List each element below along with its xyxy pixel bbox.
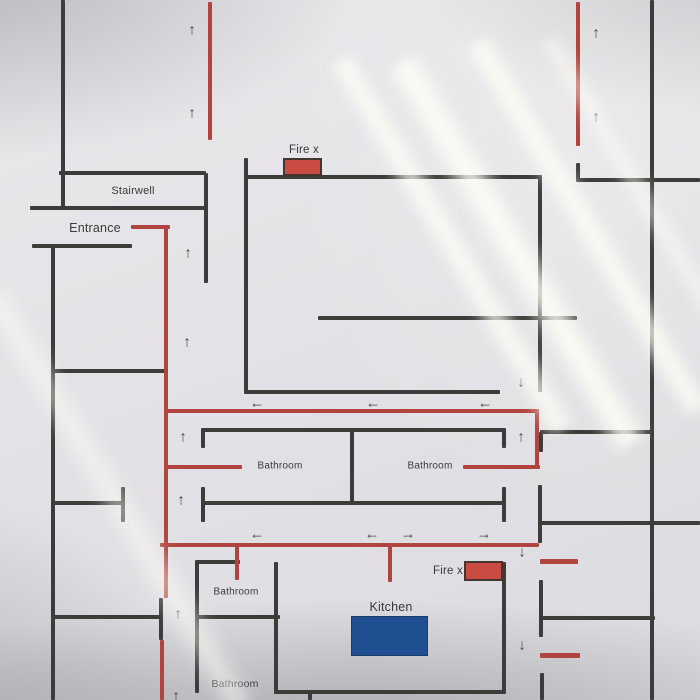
route-arrow-right: → — [477, 527, 492, 542]
kitchen-label: Kitchen — [369, 600, 412, 614]
wall-vertical — [538, 177, 542, 392]
evacuation-route-line — [208, 2, 212, 140]
evacuation-route-line — [160, 543, 539, 547]
wall-vertical — [539, 580, 543, 637]
wall-vertical — [159, 598, 163, 640]
wall-horizontal — [274, 690, 506, 694]
wall-vertical — [195, 562, 199, 693]
evacuation-route-line — [540, 653, 580, 658]
wall-horizontal — [540, 616, 655, 620]
fire-extinguisher-marker-bottom — [464, 561, 503, 581]
route-arrow-up: ↑ — [188, 106, 196, 121]
route-arrow-left: ← — [250, 396, 265, 411]
wall-horizontal — [59, 171, 206, 175]
wall-horizontal — [32, 244, 132, 248]
wall-vertical — [244, 158, 248, 392]
wall-vertical — [502, 562, 506, 692]
wall-horizontal — [201, 501, 506, 505]
route-arrow-up: ↑ — [592, 26, 600, 41]
bathroom-lower-label: Bathroom — [214, 587, 259, 598]
route-arrow-right: → — [401, 527, 416, 542]
route-arrow-down: ↓ — [518, 638, 526, 653]
fire-ext-bottom-label: Fire x — [433, 565, 463, 577]
wall-vertical — [61, 0, 65, 208]
wall-vertical — [204, 173, 208, 283]
evacuation-route-line — [540, 559, 578, 564]
wall-horizontal — [53, 615, 161, 619]
route-arrow-left: ← — [478, 396, 493, 411]
route-arrow-up: ↑ — [592, 110, 600, 125]
route-arrow-down: ↓ — [518, 545, 526, 560]
route-arrow-up: ↑ — [179, 430, 187, 445]
paper-sheet: ↑↑↑↑↑↑↑↑↑↑↑↓↓↓←←←←←→→StairwellEntranceFi… — [0, 0, 700, 700]
route-arrow-up: ↑ — [174, 607, 182, 622]
wall-horizontal — [51, 369, 168, 373]
wall-horizontal — [195, 615, 280, 619]
wall-vertical — [201, 430, 205, 448]
wall-vertical — [51, 246, 55, 700]
evacuation-route-line — [164, 465, 242, 469]
route-arrow-up: ↑ — [183, 335, 191, 350]
kitchen-island-marker — [351, 616, 428, 656]
floor-plan-photo: ↑↑↑↑↑↑↑↑↑↑↑↓↓↓←←←←←→→StairwellEntranceFi… — [0, 0, 700, 700]
wall-horizontal — [576, 178, 700, 182]
wall-horizontal — [201, 428, 506, 432]
wall-horizontal — [244, 390, 500, 394]
route-arrow-left: ← — [365, 527, 380, 542]
route-arrow-up: ↑ — [188, 23, 196, 38]
route-arrow-down: ↓ — [517, 375, 525, 390]
bathroom-bottom-label: Bathroom — [211, 678, 258, 690]
wall-vertical — [538, 485, 542, 543]
wall-vertical — [274, 562, 278, 692]
route-arrow-up: ↑ — [172, 689, 180, 700]
wall-horizontal — [51, 501, 125, 505]
evacuation-route-line — [535, 409, 539, 469]
route-arrow-left: ← — [366, 396, 381, 411]
stairwell-label: Stairwell — [111, 185, 154, 197]
evacuation-route-line — [160, 640, 164, 700]
wall-vertical — [350, 430, 354, 503]
entrance-label: Entrance — [69, 221, 121, 235]
route-arrow-up: ↑ — [517, 430, 525, 445]
route-arrow-up: ↑ — [184, 246, 192, 261]
evacuation-floor-plan: ↑↑↑↑↑↑↑↑↑↑↑↓↓↓←←←←←→→StairwellEntranceFi… — [0, 0, 700, 700]
wall-vertical — [540, 673, 544, 700]
evacuation-route-line — [463, 465, 540, 469]
route-arrow-left: ← — [250, 527, 265, 542]
wall-vertical — [650, 0, 654, 700]
evacuation-route-line — [576, 2, 580, 146]
wall-horizontal — [195, 560, 240, 564]
evacuation-route-line — [388, 543, 392, 582]
wall-vertical — [502, 430, 506, 448]
wall-horizontal — [540, 430, 652, 434]
wall-horizontal — [540, 521, 700, 525]
fire-extinguisher-marker-top — [283, 158, 322, 176]
bathroom-mid-left-label: Bathroom — [258, 461, 303, 472]
wall-horizontal — [30, 206, 206, 210]
bathroom-mid-right-label: Bathroom — [408, 461, 453, 472]
wall-horizontal — [318, 316, 577, 320]
wall-vertical — [539, 432, 543, 452]
route-arrow-up: ↑ — [177, 493, 185, 508]
fire-ext-top-label: Fire x — [289, 144, 319, 156]
evacuation-route-line — [235, 543, 239, 580]
